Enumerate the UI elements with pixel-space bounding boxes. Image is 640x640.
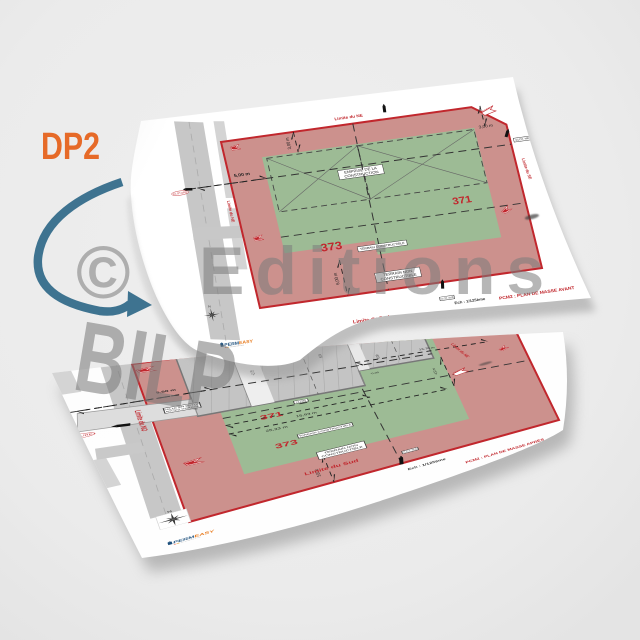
svg-text:DP2: DP2 xyxy=(41,126,100,168)
svg-text:Editions: Editions xyxy=(199,233,555,309)
svg-text:©: © xyxy=(76,231,131,314)
